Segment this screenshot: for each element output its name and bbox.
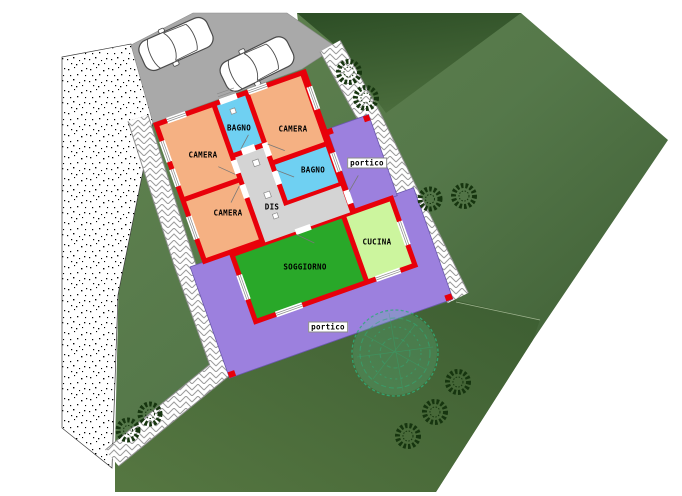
label-bagno-top: BAGNO [227, 124, 251, 133]
label-disimpegno: DIS [265, 203, 279, 212]
label-camera-bottom: CAMERA [214, 209, 243, 218]
tree-large [352, 310, 438, 396]
label-camera-top-right: CAMERA [279, 125, 308, 134]
label-cucina: CUCINA [363, 238, 392, 247]
label-soggiorno: SOGGIORNO [283, 263, 326, 272]
label-portico-top-right: portico [347, 158, 387, 169]
label-camera-top-left: CAMERA [189, 151, 218, 160]
label-portico-bottom: portico [308, 322, 348, 333]
site-plan-drawing: CAMERA BAGNO CAMERA BAGNO DIS CAMERA SOG… [0, 0, 682, 496]
label-bagno-middle: BAGNO [301, 166, 325, 175]
plan-canvas [0, 0, 682, 496]
